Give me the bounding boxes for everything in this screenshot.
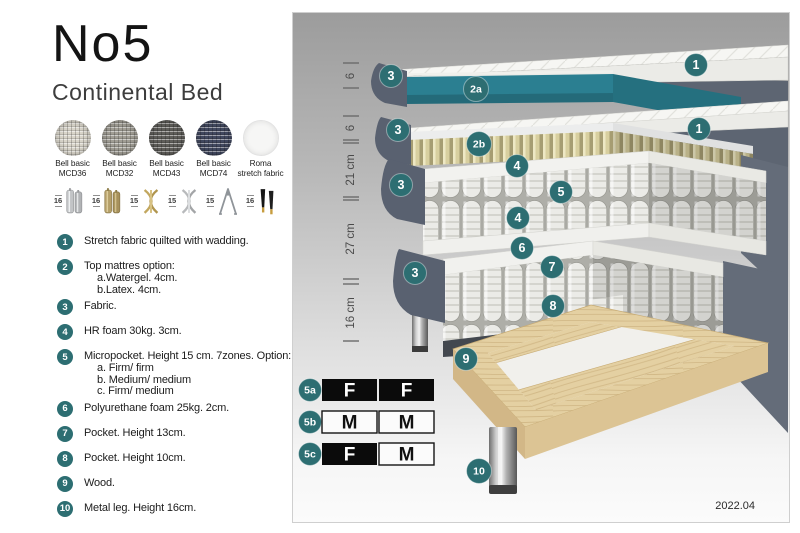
info-panel: No5 Continental Bed Bell basicMCD36 Bell… bbox=[0, 0, 292, 533]
legend-text-7: Pocket. Height 13cm. bbox=[84, 426, 186, 440]
svg-text:5b: 5b bbox=[304, 417, 316, 429]
svg-text:9: 9 bbox=[463, 352, 470, 366]
svg-text:3: 3 bbox=[395, 123, 402, 137]
legend-item-2: 2 Top mattres option: a.Watergel. 4cm. b… bbox=[57, 259, 292, 296]
legend-badge-9: 9 bbox=[57, 476, 73, 492]
dim-main-mattress: 21 cm bbox=[345, 154, 357, 185]
legend-item-9: 9 Wood. bbox=[57, 476, 292, 492]
firmness-badge-5a: 5a bbox=[299, 379, 322, 402]
fabric-swatch-mcd32-icon bbox=[102, 120, 138, 156]
dimension-ruler: 6 6 21 cm 27 cm 16 cm bbox=[343, 63, 359, 341]
swatch-code: stretch fabric bbox=[237, 169, 284, 179]
legend-item-3: 3 Fabric. bbox=[57, 299, 292, 315]
firmness-5c-right: M bbox=[399, 445, 415, 466]
svg-text:8: 8 bbox=[550, 299, 557, 313]
legend-item-8: 8 Pocket. Height 10cm. bbox=[57, 451, 292, 467]
product-title: No5 bbox=[52, 20, 292, 69]
leg-height: 15 bbox=[206, 197, 214, 205]
legend-text-3: Fabric. bbox=[84, 299, 117, 313]
legend-badge-8: 8 bbox=[57, 451, 73, 467]
callout-5-micropocket: 5 bbox=[550, 181, 573, 204]
legend-sub-2b: b.Latex. 4cm. bbox=[97, 285, 177, 297]
callout-3-fabric-main: 3 bbox=[390, 174, 413, 197]
fabric-swatch-roma: Romastretch fabric bbox=[237, 120, 284, 178]
legend-item-7: 7 Pocket. Height 13cm. bbox=[57, 426, 292, 442]
firmness-5a-right: F bbox=[401, 381, 413, 402]
callout-3-fabric-second: 3 bbox=[387, 119, 410, 142]
leg-height: 16 bbox=[246, 197, 254, 205]
legend-badge-6: 6 bbox=[57, 401, 73, 417]
svg-text:3: 3 bbox=[412, 266, 419, 280]
callout-10-metal-leg: 10 bbox=[467, 459, 492, 484]
cylinder-brass-leg-icon bbox=[102, 186, 124, 216]
version-label: 2022.04 bbox=[715, 500, 755, 512]
legend-text-10: Metal leg. Height 16cm. bbox=[84, 501, 196, 515]
callout-1-stretch-fabric-second: 1 bbox=[688, 118, 711, 141]
metal-leg-front bbox=[489, 427, 517, 494]
legend-badge-3: 3 bbox=[57, 299, 73, 315]
svg-text:4: 4 bbox=[514, 159, 521, 173]
construction-legend: 1 Stretch fabric quilted with wadding. 2… bbox=[57, 234, 292, 517]
twist-gold-leg-icon bbox=[140, 186, 162, 216]
svg-text:2a: 2a bbox=[470, 84, 482, 96]
legend-text-8: Pocket. Height 10cm. bbox=[84, 451, 186, 465]
leg-height: 15 bbox=[168, 197, 176, 205]
legend-sub-5c: c. Firm/ medium bbox=[97, 386, 291, 398]
callout-3-fabric-divan: 3 bbox=[404, 262, 427, 285]
svg-text:5: 5 bbox=[558, 185, 565, 199]
svg-text:3: 3 bbox=[398, 178, 405, 192]
callout-6-polyurethane: 6 bbox=[511, 237, 534, 260]
legend-item-10: 10 Metal leg. Height 16cm. bbox=[57, 501, 292, 517]
twist-silver-leg-icon bbox=[178, 186, 200, 216]
firmness-badge-5c: 5c bbox=[299, 443, 322, 466]
swatch-code: MCD32 bbox=[96, 169, 143, 179]
fabric-swatch-mcd36: Bell basicMCD36 bbox=[49, 120, 96, 178]
fabric-swatch-mcd74-icon bbox=[196, 120, 232, 156]
legend-badge-7: 7 bbox=[57, 426, 73, 442]
swatch-code: MCD43 bbox=[143, 169, 190, 179]
cylinder-chrome-leg-icon bbox=[64, 186, 86, 216]
leg-option-twist-silver: 15 bbox=[166, 186, 200, 216]
leg-height: 16 bbox=[54, 197, 62, 205]
callout-4-hr-foam-top: 4 bbox=[506, 155, 529, 178]
callout-2b-latex: 2b bbox=[467, 132, 492, 157]
svg-text:2b: 2b bbox=[473, 139, 485, 151]
callout-3-fabric-top: 3 bbox=[380, 65, 403, 88]
legend-badge-10: 10 bbox=[57, 501, 73, 517]
fabric-swatch-mcd74: Bell basicMCD74 bbox=[190, 120, 237, 178]
callout-1-stretch-fabric-top: 1 bbox=[685, 54, 708, 77]
hairpin-leg-icon bbox=[216, 186, 240, 216]
leg-option-twist-gold: 15 bbox=[128, 186, 162, 216]
svg-text:5c: 5c bbox=[304, 449, 316, 461]
legend-item-6: 6 Polyurethane foam 25kg. 2cm. bbox=[57, 401, 292, 417]
callout-4-hr-foam-bottom: 4 bbox=[507, 207, 530, 230]
firmness-5b-right: M bbox=[399, 413, 415, 434]
leg-height: 16 bbox=[92, 197, 100, 205]
legend-item-4: 4 HR foam 30kg. 3cm. bbox=[57, 324, 292, 340]
legend-item-1: 1 Stretch fabric quilted with wadding. bbox=[57, 234, 292, 250]
fabric-swatch-roma-icon bbox=[243, 120, 279, 156]
dim-top-mattress: 6 bbox=[345, 73, 357, 79]
legend-badge-1: 1 bbox=[57, 234, 73, 250]
svg-text:7: 7 bbox=[549, 260, 556, 274]
svg-text:3: 3 bbox=[388, 69, 395, 83]
svg-text:1: 1 bbox=[696, 122, 703, 136]
legend-badge-2: 2 bbox=[57, 259, 73, 275]
legend-badge-5: 5 bbox=[57, 349, 73, 365]
legend-item-5: 5 Micropocket. Height 15 cm. 7zones. Opt… bbox=[57, 349, 292, 398]
leg-option-black-gold: 16 bbox=[244, 186, 278, 216]
legend-text-9: Wood. bbox=[84, 476, 115, 490]
firmness-5c-left: F bbox=[344, 445, 356, 466]
diagram-panel: 6 6 21 cm 27 cm 16 cm 3 2a 1 3 2b 1 bbox=[292, 12, 790, 523]
leg-options: 16 16 15 bbox=[52, 186, 292, 216]
svg-text:1: 1 bbox=[693, 58, 700, 72]
svg-text:5a: 5a bbox=[304, 385, 316, 397]
swatch-code: MCD74 bbox=[190, 169, 237, 179]
fabric-swatches: Bell basicMCD36 Bell basicMCD32 Bell bas… bbox=[49, 120, 292, 178]
leg-option-brass: 16 bbox=[90, 186, 124, 216]
firmness-table: 5a F F 5b M M 5c F M bbox=[299, 379, 435, 466]
callout-9-wood: 9 bbox=[455, 348, 478, 371]
leg-height: 15 bbox=[130, 197, 138, 205]
callout-2a-watergel: 2a bbox=[464, 77, 489, 102]
svg-text:4: 4 bbox=[515, 211, 522, 225]
callout-8-pocket-10: 8 bbox=[542, 295, 565, 318]
leg-option-chrome: 16 bbox=[52, 186, 86, 216]
legend-text-6: Polyurethane foam 25kg. 2cm. bbox=[84, 401, 229, 415]
legend-text-1: Stretch fabric quilted with wadding. bbox=[84, 234, 249, 248]
fabric-swatch-mcd32: Bell basicMCD32 bbox=[96, 120, 143, 178]
product-subtitle: Continental Bed bbox=[52, 79, 292, 106]
legend-text-4: HR foam 30kg. 3cm. bbox=[84, 324, 182, 338]
bed-cutaway-illustration: 6 6 21 cm 27 cm 16 cm 3 2a 1 3 2b 1 bbox=[293, 13, 789, 522]
dim-base: 16 cm bbox=[345, 297, 357, 328]
firmness-5b-left: M bbox=[342, 413, 358, 434]
dim-top-option: 6 bbox=[345, 125, 357, 131]
fabric-swatch-mcd43: Bell basicMCD43 bbox=[143, 120, 190, 178]
leg-option-hairpin: 15 bbox=[204, 186, 240, 216]
callout-7-pocket-13: 7 bbox=[541, 256, 564, 279]
tapered-black-gold-leg-icon bbox=[256, 186, 278, 216]
swatch-code: MCD36 bbox=[49, 169, 96, 179]
svg-text:6: 6 bbox=[519, 241, 526, 255]
dim-divan: 27 cm bbox=[345, 223, 357, 254]
legend-badge-4: 4 bbox=[57, 324, 73, 340]
firmness-badge-5b: 5b bbox=[299, 411, 322, 434]
fabric-swatch-mcd43-icon bbox=[149, 120, 185, 156]
fabric-swatch-mcd36-icon bbox=[55, 120, 91, 156]
svg-text:10: 10 bbox=[473, 466, 485, 478]
firmness-5a-left: F bbox=[344, 381, 356, 402]
